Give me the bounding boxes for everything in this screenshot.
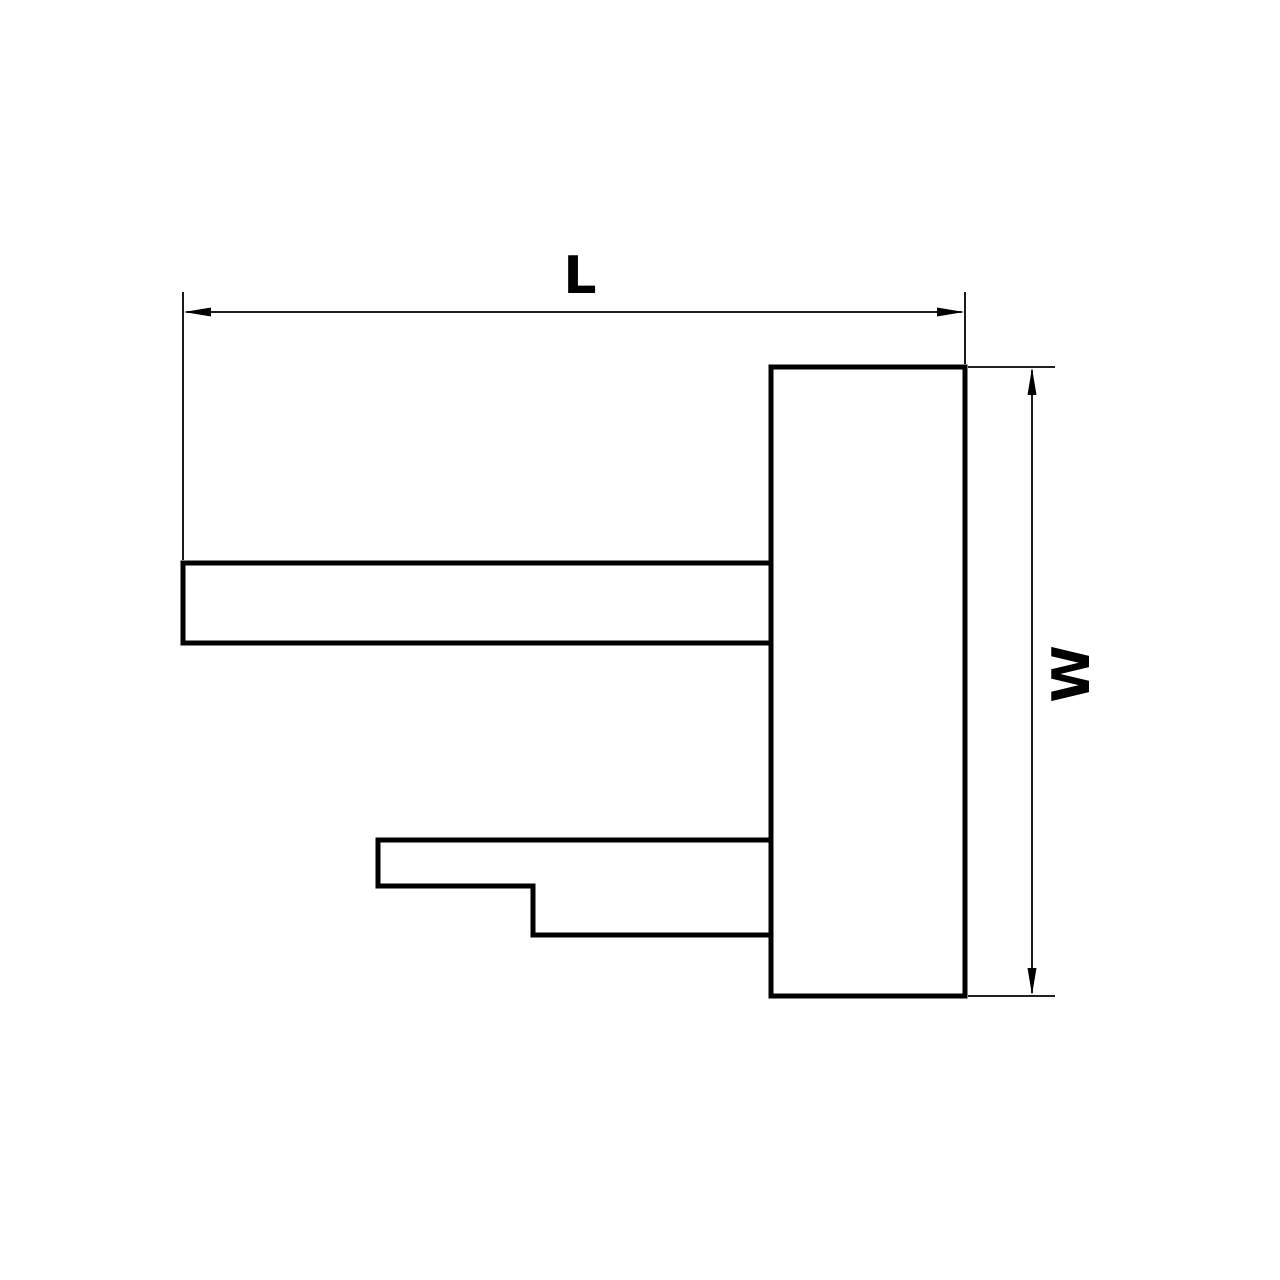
part-lower-stepped-arm-outline — [378, 840, 771, 935]
arrow-down-icon — [1028, 968, 1037, 995]
part-body-rectangle — [771, 367, 965, 996]
part-outline-group — [183, 367, 965, 996]
width-dimension-label: W — [1042, 645, 1102, 702]
width-dimension-group: W — [968, 367, 1102, 996]
part-upper-arm-outline — [183, 563, 771, 643]
length-dimension-label: L — [563, 246, 596, 306]
arrow-right-icon — [937, 308, 964, 317]
arrow-left-icon — [184, 308, 211, 317]
technical-drawing-canvas: L W — [0, 0, 1280, 1280]
drawing-sheet: L W — [0, 0, 1280, 1280]
arrow-up-icon — [1028, 368, 1037, 395]
length-dimension-group: L — [183, 246, 965, 560]
